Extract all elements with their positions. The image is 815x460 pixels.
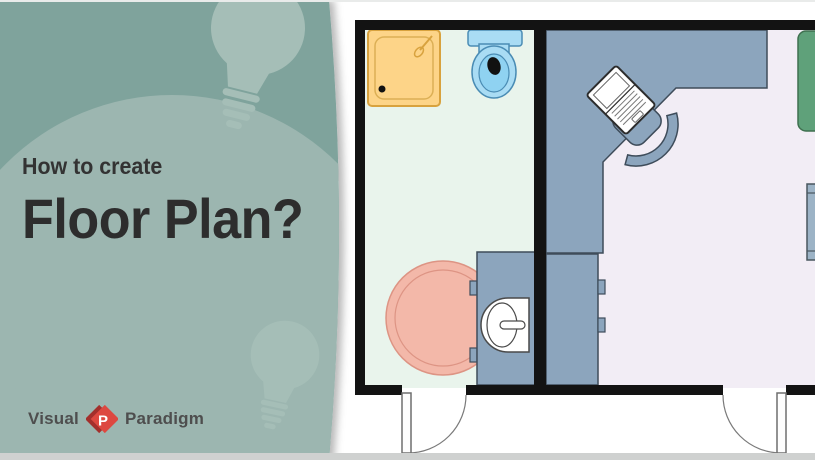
sofa-icon bbox=[798, 31, 815, 131]
wall-bottom-segment bbox=[355, 385, 402, 395]
eyebrow-text: How to create bbox=[22, 153, 162, 180]
wall-bottom-segment bbox=[786, 385, 815, 395]
shower-tray-icon bbox=[368, 30, 440, 106]
wall-middle bbox=[534, 30, 546, 395]
floorplan bbox=[355, 20, 815, 453]
wall-top bbox=[355, 20, 815, 30]
door-swing-arc bbox=[408, 395, 466, 453]
visual-paradigm-diamond-icon: P bbox=[86, 403, 118, 435]
brand-word-visual: Visual bbox=[28, 409, 79, 429]
top-edge-strip bbox=[0, 0, 815, 2]
door-leaf bbox=[777, 393, 786, 453]
cabinet-icon bbox=[546, 254, 605, 385]
shower-drain bbox=[379, 86, 386, 93]
bottom-edge-strip bbox=[0, 453, 815, 460]
brand-word-paradigm: Paradigm bbox=[125, 409, 204, 429]
faucet-icon bbox=[500, 321, 525, 329]
logo-letter: P bbox=[98, 413, 108, 430]
page-title: Floor Plan? bbox=[22, 186, 303, 251]
wall-bottom-segment bbox=[466, 385, 723, 395]
door-left-icon bbox=[402, 393, 466, 453]
door-swing-arc bbox=[723, 395, 781, 453]
banner: How to create Floor Plan? Visual P Parad… bbox=[0, 0, 815, 460]
brand-logo: Visual P Paradigm bbox=[28, 402, 204, 436]
door-leaf bbox=[402, 393, 411, 453]
shelf-icon bbox=[807, 184, 815, 260]
sink-vanity-icon bbox=[470, 252, 535, 385]
wall-left bbox=[355, 20, 365, 395]
door-right-icon bbox=[723, 393, 786, 453]
